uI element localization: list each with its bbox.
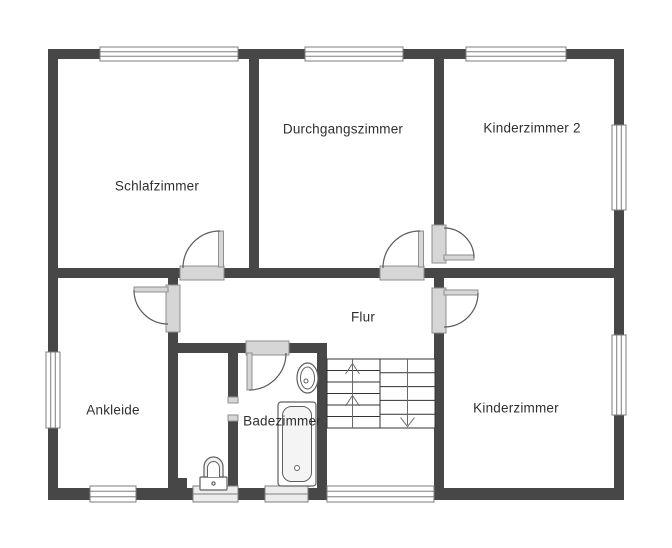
window-badezimmer-bottom [265, 486, 308, 502]
door-leaf-ankleide [134, 287, 168, 292]
wc-opening-jamb-bottom [228, 415, 238, 421]
room-label-kinderzimmer2: Kinderzimmer 2 [483, 121, 580, 136]
door-arc-badezimmer [249, 353, 286, 390]
toilet-tank [200, 477, 227, 490]
door-arc-ankleide [134, 290, 168, 324]
window-ankleide-bottom [90, 486, 136, 502]
door-leaf-kinderzimmer [444, 290, 478, 295]
wall-middle-a [58, 268, 182, 278]
room-label-schlafzimmer: Schlafzimmer [115, 179, 199, 194]
door-threshold-schlafzimmer [180, 266, 224, 280]
door-arc-kinderzimmer [444, 293, 478, 327]
wall-ankleide-b [168, 330, 178, 488]
sink [297, 363, 318, 393]
floor-plan-drawing [0, 0, 672, 548]
floor-plan: Schlafzimmer Durchgangszimmer Kinderzimm… [0, 0, 672, 548]
wall-left [48, 49, 58, 500]
room-label-badezimmer: Badezimmer [243, 414, 321, 429]
toilet [200, 457, 227, 490]
door-arc-kinderzimmer2 [444, 228, 474, 258]
wall-wc-bad-b [228, 421, 238, 488]
wall-wc-bad-a [228, 353, 238, 397]
wc-opening-jamb-top [228, 397, 238, 403]
wall-bad-top-b [287, 343, 327, 353]
sink-basin-inner [301, 367, 315, 389]
wall-middle-c [422, 268, 614, 278]
window-durchgangszimmer-top [305, 47, 403, 61]
room-label-durchgangszimmer: Durchgangszimmer [283, 122, 403, 137]
wall-right [614, 49, 624, 500]
toilet-bowl-inner [208, 462, 220, 478]
door-leaf-durchgangszimmer [419, 231, 424, 267]
wall-durchgang-kinder2 [434, 59, 444, 226]
window-schlafzimmer-top [100, 47, 238, 61]
bathtub-drain [295, 466, 300, 471]
door-leaf-kinderzimmer2 [444, 255, 474, 260]
room-label-ankleide: Ankleide [86, 403, 139, 418]
window-flur-bottom [327, 486, 434, 502]
door-threshold-durchgangszimmer [380, 266, 424, 280]
room-label-flur: Flur [351, 310, 375, 325]
door-arc-schlafzimmer [183, 231, 220, 268]
wall-wc-top [178, 343, 238, 353]
window-kinderzimmer2-right [612, 125, 626, 210]
window-kinderzimmer-right [612, 335, 626, 415]
window-kinderzimmer2-top [466, 47, 566, 61]
wall-schlaf-durchgang [249, 59, 259, 269]
window-ankleide-left [46, 352, 60, 428]
staircase [327, 359, 435, 428]
door-leaf-schlafzimmer [219, 231, 224, 267]
wall-ankleide-pier [178, 478, 187, 488]
door-leaf-badezimmer [247, 353, 252, 390]
room-label-kinderzimmer: Kinderzimmer [473, 401, 559, 416]
wall-middle-b [222, 268, 382, 278]
door-arc-durchgangszimmer [383, 231, 420, 268]
